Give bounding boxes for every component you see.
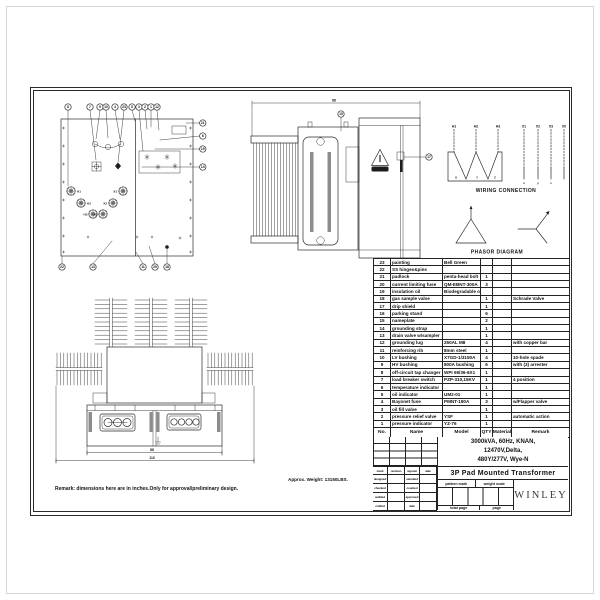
table-cell-name: off-circuit tap changer — [391, 369, 443, 375]
table-cell-name: reinforcing rib — [391, 347, 443, 353]
cabinet-outline — [87, 405, 222, 446]
header-remark: Remark — [512, 428, 569, 437]
side-box — [346, 147, 359, 182]
table-row: 2pressure relief valveYSF1automatic acti… — [374, 413, 569, 420]
table-row: 7load breaker switchPZP-310,15KV14 posit… — [374, 377, 569, 384]
table-cell-qty: 1 — [481, 413, 493, 419]
drain-dot — [165, 245, 169, 249]
table-cell-mat — [493, 369, 512, 375]
table-cell-mat — [493, 310, 512, 316]
table-cell-no: 2 — [374, 413, 391, 419]
table-cell-model: Bell Green — [443, 259, 481, 265]
callout-number: 22 — [60, 265, 64, 269]
table-cell-qty — [481, 288, 493, 294]
phase-label: Y — [476, 176, 479, 180]
tap-changer-symbol — [92, 162, 101, 171]
sig-cell — [388, 493, 405, 502]
table-cell-rem — [512, 384, 569, 390]
sig-cell — [420, 493, 437, 502]
table-row: 22SS hinges&pins — [374, 266, 569, 273]
table-cell-no: 11 — [374, 347, 391, 353]
table-cell-name: drain valve w/sampler — [391, 332, 443, 338]
table-cell-name: grounding lug — [391, 340, 443, 346]
table-cell-mat — [493, 296, 512, 302]
table-cell-mat — [493, 266, 512, 272]
table-cell-name: LV bushing — [391, 354, 443, 360]
lifting-arc — [95, 144, 121, 148]
table-cell-name: temperature indicator — [391, 384, 443, 390]
table-cell-mat — [493, 384, 512, 390]
table-cell-no: 6 — [374, 384, 391, 390]
sig-cell — [388, 475, 405, 484]
table-row: 6temperature indicator1 — [374, 384, 569, 391]
side-view: 88 15 17 — [251, 99, 432, 259]
table-cell-qty: 1 — [481, 369, 493, 375]
sig-label: checked — [373, 484, 388, 493]
table-cell-mat — [493, 259, 512, 265]
phase-label: z — [550, 181, 552, 185]
rev-header: signum — [405, 467, 420, 475]
table-cell-name: current limiting fuse — [391, 281, 443, 287]
table-cell-no: 18 — [374, 296, 391, 302]
table-row: 3oil fill valve1 — [374, 406, 569, 413]
table-cell-mat — [493, 362, 512, 368]
callout-number: 17 — [427, 155, 431, 159]
parts-table: 23paintingBell Green22SS hinges&pins21pa… — [373, 258, 569, 437]
table-cell-no: 1 — [374, 421, 391, 427]
callout-number: 2 — [144, 105, 146, 109]
callout-number: 15 — [339, 112, 343, 116]
gauge-panel — [139, 151, 180, 173]
callout-number: 19 — [201, 147, 205, 151]
table-cell-no: 21 — [374, 274, 391, 280]
sig-cell — [420, 502, 437, 511]
terminal-label: H1 — [452, 125, 456, 129]
table-cell-no: 3 — [374, 406, 391, 412]
parts-rows: 23paintingBell Green22SS hinges&pins21pa… — [374, 259, 569, 428]
callout-number: 12 — [155, 105, 159, 109]
table-cell-no: 12 — [374, 340, 391, 346]
sig-label: standard — [405, 475, 420, 484]
table-row: 4Bayonet fusePMNT-180A3w/Flapper valve — [374, 399, 569, 406]
table-cell-rem — [512, 281, 569, 287]
table-cell-model: X7GD-1/3150A — [443, 354, 481, 360]
bushing-label: X3 — [94, 212, 98, 216]
table-cell-model: 8mm steel — [443, 347, 481, 353]
table-cell-no: 22 — [374, 266, 391, 272]
table-cell-qty: 6 — [481, 310, 493, 316]
callout-number: 20 — [153, 265, 157, 269]
table-cell-qty — [481, 266, 493, 272]
table-cell-name: nameplate — [391, 318, 443, 324]
table-cell-mat — [493, 413, 512, 419]
table-cell-rem: 10-hole spade — [512, 354, 569, 360]
callout-number: 9 — [99, 105, 101, 109]
terminal-label: H2 — [474, 125, 478, 129]
callout-number: 7 — [89, 105, 91, 109]
table-cell-name: load breaker switch — [391, 377, 443, 383]
phasor-title: PHASOR DIAGRAM — [471, 250, 523, 256]
table-cell-no: 8 — [374, 369, 391, 375]
table-cell-rem — [512, 288, 569, 294]
table-cell-mat — [493, 399, 512, 405]
weight-scale-label: weight scale — [476, 480, 514, 487]
rev-header: mark — [373, 467, 388, 475]
sig-label: audited — [373, 493, 388, 502]
phase-label: X — [455, 176, 458, 180]
wiring-title: WIRING CONNECTION — [476, 188, 536, 194]
table-cell-rem: with (3) arrester — [512, 362, 569, 368]
bushing-label: H3 — [84, 212, 88, 216]
bushing-label: X1 — [113, 189, 117, 193]
table-cell-rem — [512, 325, 569, 331]
spec-line: 12470V,Delta, — [484, 447, 522, 456]
terminal-label: H3 — [496, 125, 500, 129]
table-cell-mat — [493, 303, 512, 309]
table-cell-qty: 6 — [481, 362, 493, 368]
header-name: Name — [391, 428, 443, 437]
spec-line: 480Y/277V, Wye-N — [477, 456, 528, 465]
table-row: 12grounding lug250AL M84with copper bar — [374, 340, 569, 347]
table-row: 13drain valve w/sampler1 — [374, 332, 569, 339]
tank-outline — [107, 347, 202, 403]
table-cell-rem — [512, 332, 569, 338]
table-row: 14grounding strap1 — [374, 325, 569, 332]
leader-lines — [62, 110, 200, 264]
table-cell-no: 20 — [374, 281, 391, 287]
table-cell-rem — [512, 266, 569, 272]
table-cell-model: PMNT-180A — [443, 399, 481, 405]
table-cell-mat — [493, 332, 512, 338]
door-panel — [303, 137, 338, 245]
table-cell-model: Biodegradable oil — [443, 288, 481, 294]
table-cell-no: 13 — [374, 332, 391, 338]
terminal-label: X2 — [536, 125, 540, 129]
signature-grid: mark revision signum date designed stand… — [373, 466, 437, 510]
spec-line: 3000kVA, 60Hz, KNAN, — [471, 438, 535, 447]
spec-block: 3000kVA, 60Hz, KNAN, 12470V,Delta, 480Y/… — [437, 437, 568, 466]
table-cell-mat — [493, 377, 512, 383]
table-cell-model — [443, 266, 481, 272]
table-cell-mat — [493, 288, 512, 294]
table-cell-rem — [512, 303, 569, 309]
table-cell-name: Bayonet fuse — [391, 399, 443, 405]
drawing-page: { "notes": { "remark": "Remark: dimensio… — [0, 0, 600, 600]
callout-number: 14 — [201, 165, 205, 169]
table-row: 18gas sample valve1Schrade Valve — [374, 296, 569, 303]
table-cell-mat — [493, 354, 512, 360]
sig-cell — [420, 484, 437, 493]
table-cell-model: UM2-01 — [443, 391, 481, 397]
table-cell-rem — [512, 318, 569, 324]
table-cell-no: 10 — [374, 354, 391, 360]
table-cell-qty: 1 — [481, 332, 493, 338]
table-cell-model — [443, 332, 481, 338]
dimension-lines — [56, 386, 254, 463]
callout-number: 13 — [91, 265, 95, 269]
rev-header: date — [420, 467, 437, 475]
table-cell-name: grounding strap — [391, 325, 443, 331]
table-row: 11reinforcing rib8mm steel1 — [374, 347, 569, 354]
front-view: H1 H2 H3 X1 X2 X3 8 7 9 10 — [59, 104, 206, 270]
table-cell-model: YZ-76 — [443, 421, 481, 427]
table-cell-name: parking stand — [391, 310, 443, 316]
phase-label: y — [537, 181, 539, 185]
table-cell-qty: 3 — [481, 399, 493, 405]
sig-cell — [388, 502, 405, 511]
table-row: 19insulation oilBiodegradable oil — [374, 288, 569, 295]
callout-number: 8 — [67, 105, 69, 109]
table-cell-rem — [512, 310, 569, 316]
callout-number: 23 — [122, 105, 126, 109]
ground-symbol — [156, 437, 161, 444]
door-slot — [310, 152, 314, 232]
table-cell-rem: w/Flapper valve — [512, 399, 569, 405]
terminal-label: X1 — [522, 125, 526, 129]
table-cell-no: 14 — [374, 325, 391, 331]
callout-number: 10 — [104, 105, 108, 109]
radiator-fins — [254, 143, 296, 236]
lifting-lug — [344, 122, 348, 127]
header-model: Model — [443, 428, 481, 437]
cabinet — [359, 118, 420, 258]
table-cell-mat — [493, 347, 512, 353]
table-cell-qty: 1 — [481, 406, 493, 412]
header-no: No. — [374, 428, 391, 437]
sig-cell — [420, 475, 437, 484]
bushing-label: X2 — [103, 201, 107, 205]
table-cell-no: 7 — [374, 377, 391, 383]
table-cell-mat — [493, 391, 512, 397]
table-cell-name: pressure indicator — [391, 421, 443, 427]
nameplate-outline — [172, 126, 186, 134]
hv-bushings: H1 H2 H3 — [67, 187, 97, 218]
table-cell-no: 17 — [374, 303, 391, 309]
table-cell-model — [443, 296, 481, 302]
bushing-label: H1 — [77, 189, 81, 193]
phase-label: Z — [494, 176, 496, 180]
approx-weight-note: Approx. Weight: 13150LBS. — [288, 477, 348, 482]
table-cell-name: gas sample valve — [391, 296, 443, 302]
table-cell-no: 9 — [374, 362, 391, 368]
table-cell-model: WPI 69/36-6X1 — [443, 369, 481, 375]
table-cell-qty: 1 — [481, 421, 493, 427]
table-cell-no: 15 — [374, 318, 391, 324]
table-cell-name: padlock — [391, 274, 443, 280]
table-cell-qty: 3 — [481, 281, 493, 287]
table-cell-no: 4 — [374, 399, 391, 405]
door-slot — [328, 152, 332, 232]
table-row: 10LV bushingX7GD-1/3150A410-hole spade — [374, 354, 569, 361]
remark-note: Remark: dimensions here are in inches.On… — [55, 486, 238, 492]
table-cell-rem: automatic action — [512, 413, 569, 419]
table-cell-qty: 1 — [481, 347, 493, 353]
bushing-label: H2 — [87, 201, 91, 205]
sig-label: designed — [373, 475, 388, 484]
table-cell-qty: 1 — [481, 384, 493, 390]
callout-number: 3 — [138, 105, 140, 109]
table-cell-model: PZP-310,15KV — [443, 377, 481, 383]
table-cell-model — [443, 325, 481, 331]
table-cell-model — [443, 303, 481, 309]
rev-header: revision — [388, 467, 405, 475]
header-material: Material — [493, 428, 512, 437]
dimension-value: 88 — [150, 448, 154, 452]
table-cell-qty: 4 — [481, 340, 493, 346]
table-cell-mat — [493, 406, 512, 412]
table-row: 20current limiting fuseQM-EBNT-300A3 — [374, 281, 569, 288]
callout-number: 18 — [165, 265, 169, 269]
table-cell-mat — [493, 318, 512, 324]
radiator-header-bottom — [251, 236, 298, 243]
table-row: 15nameplate2 — [374, 318, 569, 325]
callout-number: 21 — [201, 121, 205, 125]
lv-bushing-panel — [167, 414, 201, 430]
table-cell-mat — [493, 281, 512, 287]
revision-empty-grid — [373, 437, 437, 466]
dimension-value: 88 — [332, 99, 336, 103]
table-cell-rem — [512, 406, 569, 412]
table-cell-name: drip shield — [391, 303, 443, 309]
table-row: 21padlockpenta-head bolt1 — [374, 274, 569, 281]
callout-number: 4 — [114, 105, 116, 109]
table-cell-rem — [512, 347, 569, 353]
table-cell-model — [443, 310, 481, 316]
callout-number: 6 — [202, 134, 204, 138]
table-cell-model: YSF — [443, 413, 481, 419]
drawing-title: 3P Pad Mounted Transformer — [437, 466, 568, 479]
table-cell-mat — [493, 325, 512, 331]
table-cell-no: 19 — [374, 288, 391, 294]
table-cell-model — [443, 406, 481, 412]
table-cell-name: SS hinges&pins — [391, 266, 443, 272]
sig-cell — [388, 484, 405, 493]
wiring-diagram: H1 H2 H3 X Y Z X1 X2 X3 X0 x y z WIRING … — [448, 125, 566, 195]
table-row: 23paintingBell Green — [374, 259, 569, 266]
delta-phasor — [456, 219, 486, 243]
switch-symbol — [115, 163, 121, 170]
header-qty: QTY — [481, 428, 493, 437]
table-cell-model — [443, 384, 481, 390]
table-cell-name: oil indicator — [391, 391, 443, 397]
table-row: 17drip shield1 — [374, 303, 569, 310]
table-cell-rem: 4 position — [512, 377, 569, 383]
sig-label: approved — [405, 493, 420, 502]
table-cell-qty: 1 — [481, 274, 493, 280]
table-cell-mat — [493, 340, 512, 346]
lifting-lug — [308, 122, 312, 127]
radiator-header-top — [251, 136, 298, 143]
table-cell-name: HV bushing — [391, 362, 443, 368]
table-cell-mat — [493, 274, 512, 280]
table-cell-no: 23 — [374, 259, 391, 265]
table-cell-model: 250AL M8 — [443, 340, 481, 346]
company-logo: WINLEY — [513, 479, 568, 510]
dimension-value: 110 — [149, 456, 155, 460]
valve-symbols — [145, 155, 177, 170]
total-page-label: total page — [438, 506, 480, 510]
weight-scale-block: pattern mark weight scale total page pag… — [437, 479, 513, 510]
table-cell-mat — [493, 421, 512, 427]
table-cell-no: 16 — [374, 310, 391, 316]
sig-label: counted — [405, 484, 420, 493]
table-cell-rem — [512, 391, 569, 397]
table-cell-model — [443, 318, 481, 324]
table-cell-qty — [481, 259, 493, 265]
table-cell-name: painting — [391, 259, 443, 265]
table-cell-qty: 2 — [481, 318, 493, 324]
terminal-label: X3 — [549, 125, 553, 129]
table-cell-qty: 1 — [481, 303, 493, 309]
table-cell-model: penta-head bolt — [443, 274, 481, 280]
plan-view: 88 110 — [56, 298, 254, 463]
page-label: page — [480, 506, 513, 510]
table-row: 8off-circuit tap changerWPI 69/36-6X11 — [374, 369, 569, 376]
sig-label: crafted — [373, 502, 388, 511]
table-cell-model: 800A bushing — [443, 362, 481, 368]
table-cell-name: insulation oil — [391, 288, 443, 294]
sig-label: date — [405, 502, 420, 511]
table-cell-rem: Schrade Valve — [512, 296, 569, 302]
callout-number: 5 — [131, 105, 133, 109]
table-row: 1pressure indicatorYZ-761 — [374, 421, 569, 428]
table-cell-model: QM-EBNT-300A — [443, 281, 481, 287]
hv-bushing-panel — [100, 414, 135, 431]
table-row: 9HV bushing800A bushing6with (3) arreste… — [374, 362, 569, 369]
leader-lines — [341, 117, 426, 157]
table-cell-rem — [512, 259, 569, 265]
table-cell-rem: with copper bar — [512, 340, 569, 346]
terminal-label: X0 — [562, 125, 566, 129]
table-cell-qty: 1 — [481, 325, 493, 331]
wye-phasor — [518, 213, 549, 244]
table-cell-name: pressure relief valve — [391, 413, 443, 419]
lv-bushings: X1 X2 X3 — [94, 187, 127, 218]
table-cell-qty: 1 — [481, 296, 493, 302]
callout-number: 11 — [141, 265, 145, 269]
table-row: 5oil indicatorUM2-011 — [374, 391, 569, 398]
table-cell-name: oil fill valve — [391, 406, 443, 412]
table-cell-qty: 4 — [481, 354, 493, 360]
callout-balloons: 8 7 9 10 4 23 5 3 2 1 12 21 6 19 14 22 1… — [59, 104, 206, 270]
table-cell-qty: 1 — [481, 391, 493, 397]
table-cell-rem — [512, 421, 569, 427]
table-cell-qty: 1 — [481, 377, 493, 383]
phase-label: x — [523, 181, 525, 185]
weight-scale-cells — [438, 487, 513, 506]
callout-number: 1 — [150, 105, 152, 109]
phasor-diagram: PHASOR DIAGRAM — [456, 206, 550, 256]
table-row: 16parking stand6 — [374, 310, 569, 317]
dimension-line — [252, 101, 420, 136]
wye-winding — [524, 168, 564, 179]
table-cell-no: 5 — [374, 391, 391, 397]
table-cell-rem — [512, 369, 569, 375]
pattern-mark-label: pattern mark — [438, 480, 476, 487]
table-cell-rem — [512, 274, 569, 280]
warning-triangle-icon — [372, 150, 389, 172]
